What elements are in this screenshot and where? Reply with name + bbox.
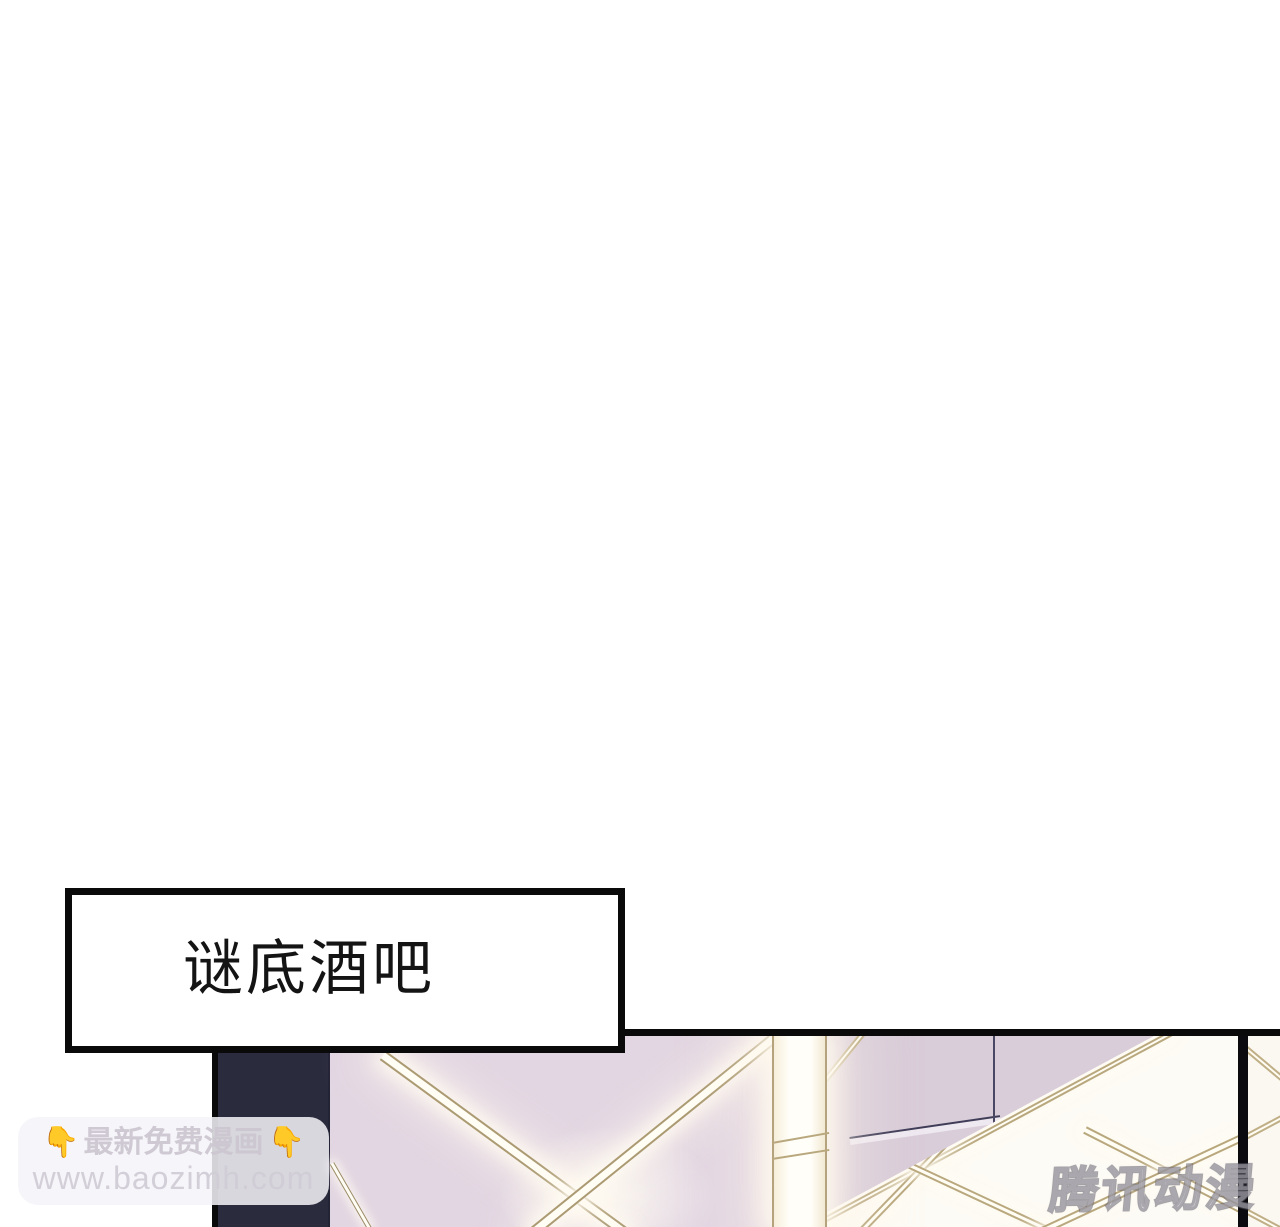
- caption-box: 谜底酒吧: [65, 888, 625, 1053]
- point-down-emoji: 👇: [42, 1126, 79, 1160]
- pillar-divider-line: [772, 1132, 829, 1144]
- lattice-strip: [821, 1030, 867, 1085]
- comic-page: 谜底酒吧 👇 最新免费漫画 👇 www.baozimh.com 腾讯动漫: [0, 0, 1280, 1227]
- lattice-strip: [896, 1156, 1071, 1227]
- baozimh-url-text: www.baozimh.com: [33, 1160, 315, 1196]
- point-down-emoji: 👇: [268, 1126, 305, 1160]
- wall-crease-line: [993, 1036, 995, 1123]
- lattice-strip: [1248, 1043, 1280, 1086]
- lattice-strip: [1248, 1108, 1280, 1141]
- baozimh-slogan-text: 最新免费漫画: [84, 1126, 264, 1160]
- baozimh-watermark-line1: 👇 最新免费漫画 👇: [42, 1126, 305, 1160]
- vertical-light-pillar: [772, 1036, 827, 1227]
- baozimh-watermark: 👇 最新免费漫画 👇 www.baozimh.com: [18, 1117, 329, 1205]
- tencent-comics-watermark: 腾讯动漫: [1047, 1148, 1262, 1223]
- light-strip: [330, 1162, 372, 1227]
- caption-text: 谜底酒吧: [72, 920, 435, 1021]
- pillar-divider-line: [772, 1149, 830, 1160]
